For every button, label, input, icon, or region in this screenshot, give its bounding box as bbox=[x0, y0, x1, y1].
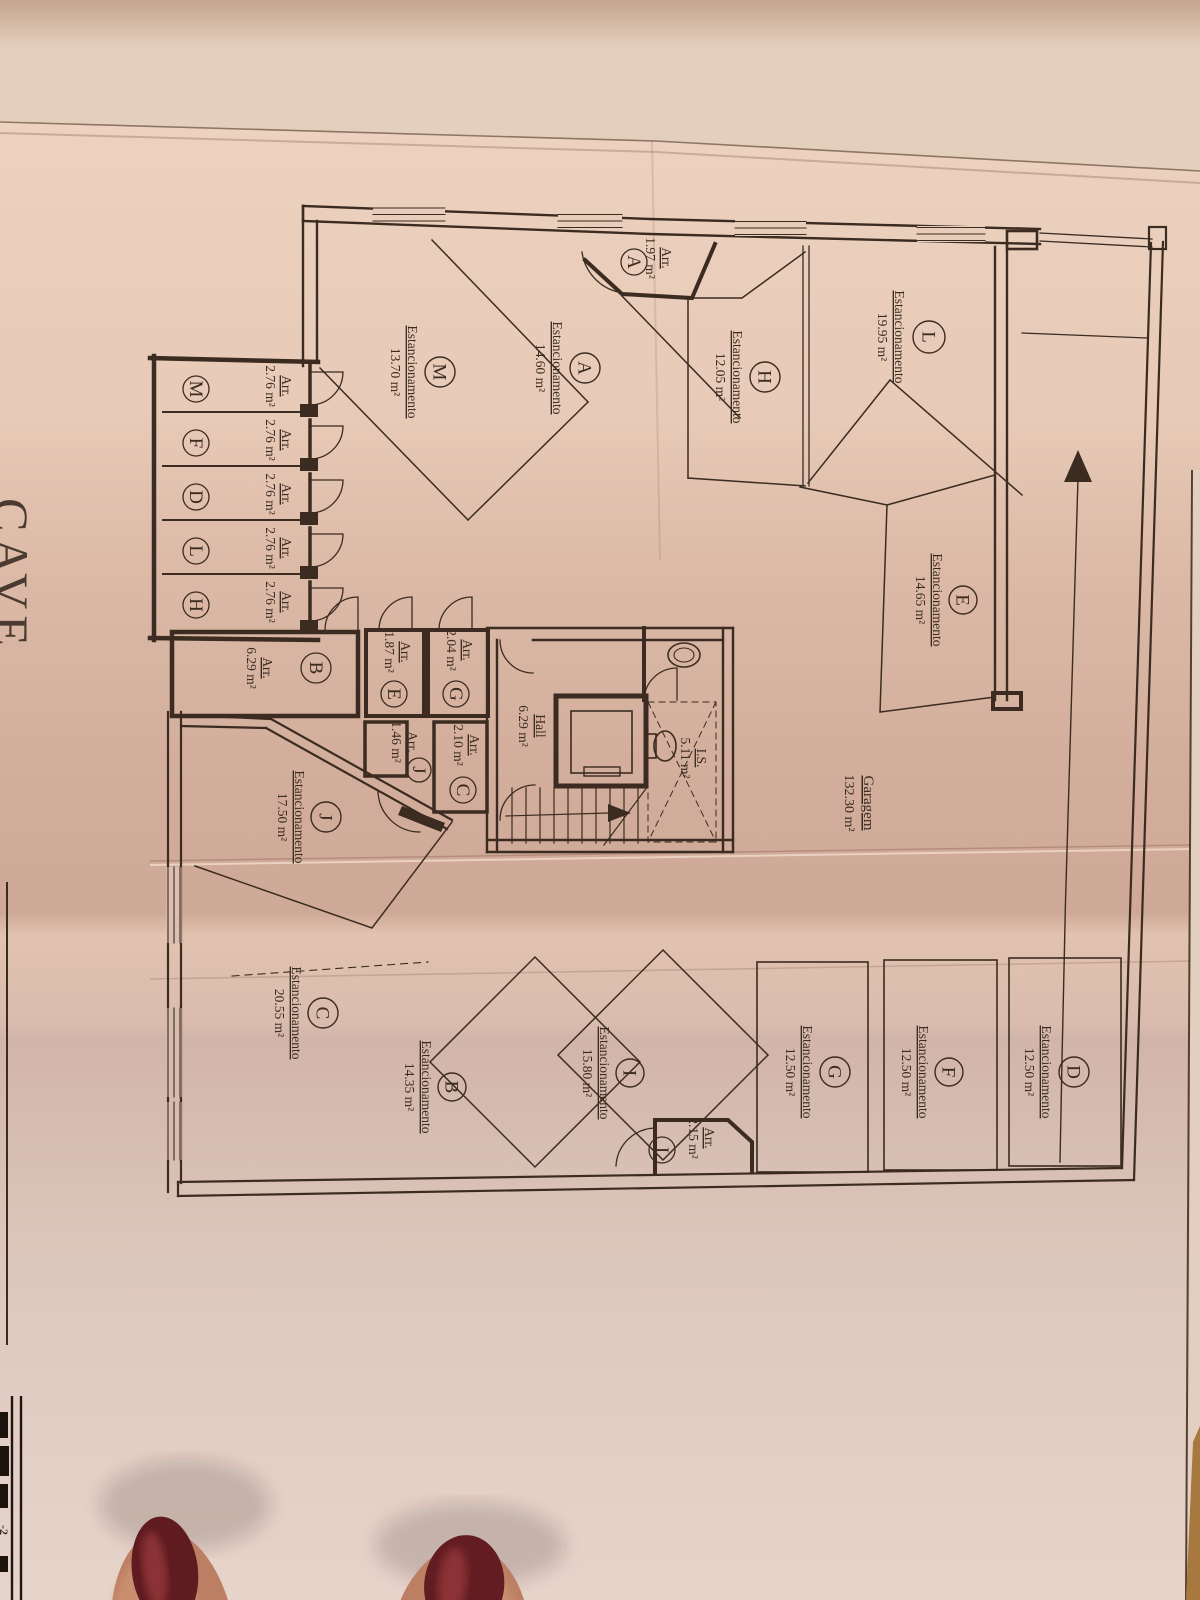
storage-word: Arr. bbox=[279, 537, 294, 558]
storage-letter: B bbox=[305, 662, 326, 675]
storage-letter: C bbox=[452, 784, 473, 797]
parking-word: Estancionamento bbox=[800, 1026, 815, 1119]
storage-word: Arr. bbox=[702, 1127, 717, 1148]
parking-area: 13.70 m² bbox=[388, 348, 403, 396]
parking-letter: B bbox=[441, 1081, 462, 1094]
storage-area: 2.10 m² bbox=[451, 724, 466, 766]
wc-area: 5.11 m² bbox=[678, 737, 693, 778]
wc-name: I.S. bbox=[694, 749, 709, 768]
storage-word: Arr. bbox=[398, 641, 413, 662]
parking-letter: D bbox=[1063, 1065, 1084, 1079]
parking-word: Estancionamento bbox=[1039, 1026, 1054, 1119]
parking-letter: A bbox=[574, 361, 595, 375]
hall-name: Hall bbox=[533, 714, 548, 737]
storage-word: Arr. bbox=[460, 639, 475, 660]
storage-area: 2.04 m² bbox=[444, 629, 459, 671]
parking-area: 17.50 m² bbox=[275, 793, 290, 841]
storage-area: 6.29 m² bbox=[244, 647, 259, 689]
storage-letter: L bbox=[185, 545, 206, 557]
storage-area: 2.76 m² bbox=[263, 419, 278, 461]
storage-area: 2.76 m² bbox=[263, 581, 278, 623]
storage-area: 1.46 m² bbox=[389, 721, 404, 763]
parking-letter: C bbox=[312, 1007, 333, 1020]
floor-plan-photo-canvas: L Estancionamento 19.95 m² H Estancionam… bbox=[0, 0, 1200, 1600]
parking-word: Estancionamento bbox=[892, 291, 907, 384]
storage-word: Arr. bbox=[279, 483, 294, 504]
parking-area: 12.50 m² bbox=[783, 1048, 798, 1096]
parking-letter: J bbox=[315, 813, 336, 820]
storage-letter: J bbox=[408, 766, 429, 773]
parking-letter: M bbox=[429, 364, 450, 381]
parking-area: 20.55 m² bbox=[272, 989, 287, 1037]
parking-area: 15.80 m² bbox=[580, 1049, 595, 1097]
parking-letter: F bbox=[938, 1067, 959, 1078]
parking-letter: E bbox=[952, 594, 973, 606]
storage-word: Arr. bbox=[659, 247, 674, 268]
storage-word: Arr. bbox=[279, 429, 294, 450]
parking-letter: I bbox=[619, 1070, 640, 1076]
storage-area: 2.76 m² bbox=[263, 365, 278, 407]
storage-word: Arr. bbox=[279, 375, 294, 396]
parking-letter: L bbox=[918, 331, 939, 343]
floor-title: CAVE bbox=[0, 498, 39, 652]
parking-word: Estancionamento bbox=[916, 1026, 931, 1119]
parking-word: Estancionamento bbox=[419, 1041, 434, 1134]
storage-letter: G bbox=[445, 687, 466, 701]
storage-word: Arr. bbox=[467, 734, 482, 755]
storage-area: 1.87 m² bbox=[382, 631, 397, 673]
parking-area: 12.50 m² bbox=[899, 1048, 914, 1096]
sheet-code: -2 bbox=[0, 1525, 11, 1535]
window-segments-left bbox=[167, 867, 182, 1160]
parking-area: 14.60 m² bbox=[533, 344, 548, 392]
parking-letter: G bbox=[824, 1065, 845, 1079]
table-shadow-top bbox=[0, 0, 1200, 46]
storage-letter: M bbox=[185, 381, 206, 398]
storage-word: Arr. bbox=[260, 657, 275, 678]
storage-area: 2.76 m² bbox=[263, 473, 278, 515]
storage-letter: E bbox=[383, 688, 404, 700]
storage-word: Arr. bbox=[279, 591, 294, 612]
floor-title-text: CAVE bbox=[0, 498, 39, 652]
storage-area: 1.97 m² bbox=[643, 237, 658, 279]
storage-letter: D bbox=[185, 490, 206, 504]
parking-area: 14.35 m² bbox=[402, 1063, 417, 1111]
parking-word: Estancionamento bbox=[292, 771, 307, 864]
storage-word: Arr. bbox=[405, 731, 420, 752]
garage-name: Garagem bbox=[860, 776, 876, 831]
parking-word: Estancionamento bbox=[930, 554, 945, 647]
parking-area: 12.50 m² bbox=[1022, 1048, 1037, 1096]
parking-word: Estancionamento bbox=[289, 967, 304, 1060]
parking-area: 19.95 m² bbox=[875, 313, 890, 361]
parking-word: Estancionamento bbox=[550, 322, 565, 415]
storage-letter: A bbox=[623, 255, 644, 269]
parking-word: Estancionamento bbox=[597, 1027, 612, 1120]
parking-word: Estancionamento bbox=[730, 331, 745, 424]
parking-letter: H bbox=[754, 370, 775, 384]
garage-area: 132.30 m² bbox=[841, 774, 856, 831]
parking-area: 12.05 m² bbox=[713, 353, 728, 401]
storage-area: 2.76 m² bbox=[263, 527, 278, 569]
storage-letter: F bbox=[185, 438, 206, 449]
photo-of-floor-plan: L Estancionamento 19.95 m² H Estancionam… bbox=[0, 0, 1200, 1600]
storage-letter: H bbox=[185, 598, 206, 612]
storage-letter: I bbox=[651, 1147, 672, 1153]
parking-word: Estancionamento bbox=[405, 326, 420, 419]
storage-area: 2.15 m² bbox=[686, 1117, 701, 1159]
hall-area: 6.29 m² bbox=[516, 705, 531, 747]
parking-area: 14.65 m² bbox=[913, 576, 928, 624]
